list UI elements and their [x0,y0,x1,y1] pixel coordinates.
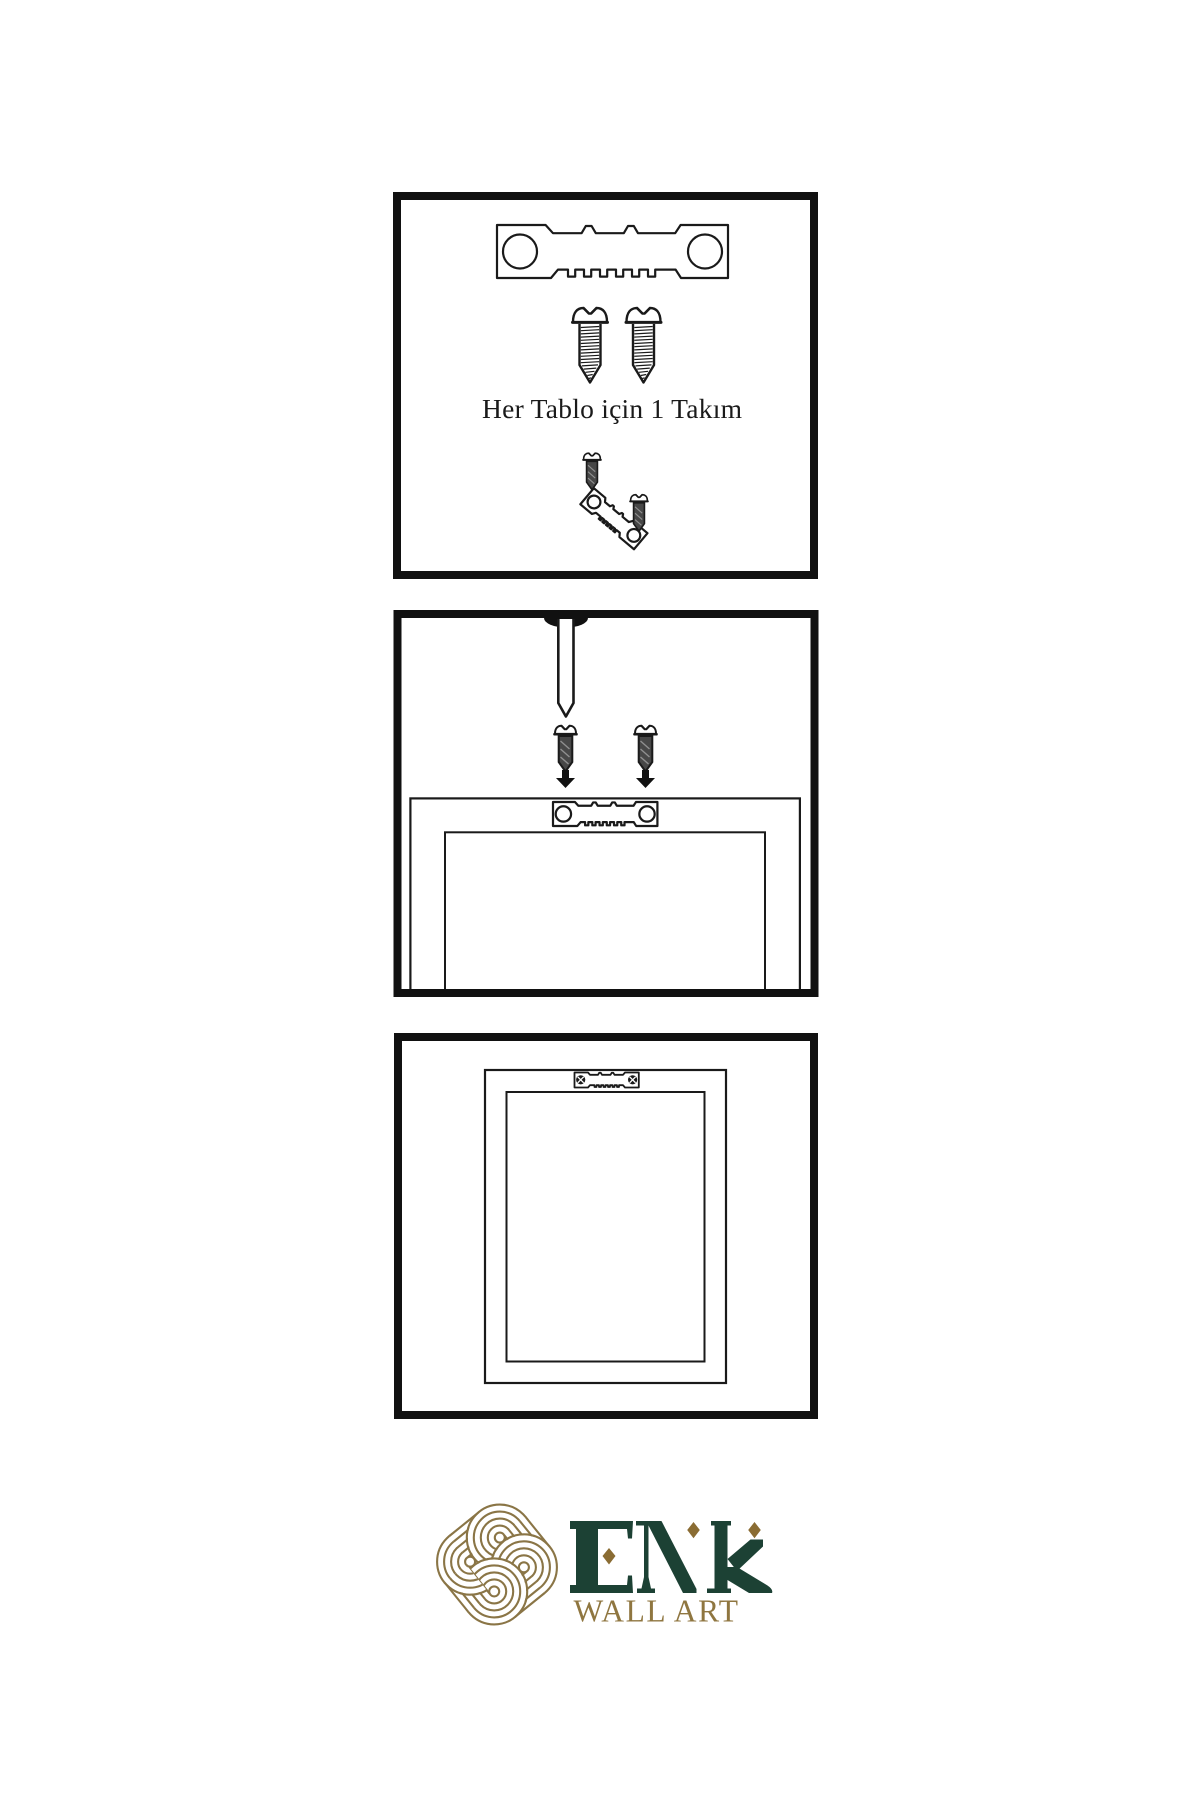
svg-text:WALL ART: WALL ART [574,1594,739,1629]
svg-text:Her Tablo için 1 Takım: Her Tablo için 1 Takım [482,393,742,424]
